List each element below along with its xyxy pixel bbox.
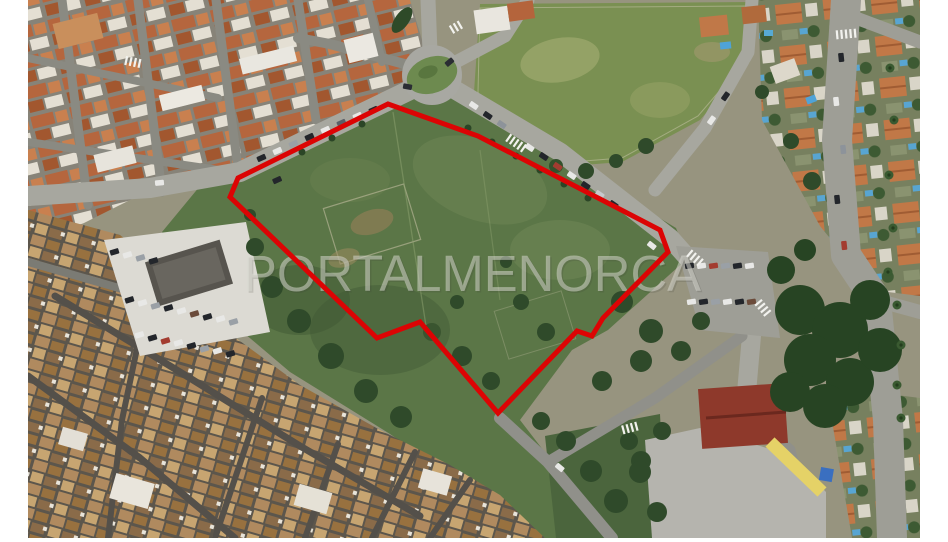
aerial-photo-svg: PORTALMENORCA PORTALMENORCA: [28, 0, 920, 538]
screenshot-root: PORTALMENORCA PORTALMENORCA: [0, 0, 948, 542]
aerial-photo: PORTALMENORCA PORTALMENORCA: [28, 0, 920, 538]
roundabout: [401, 45, 462, 105]
